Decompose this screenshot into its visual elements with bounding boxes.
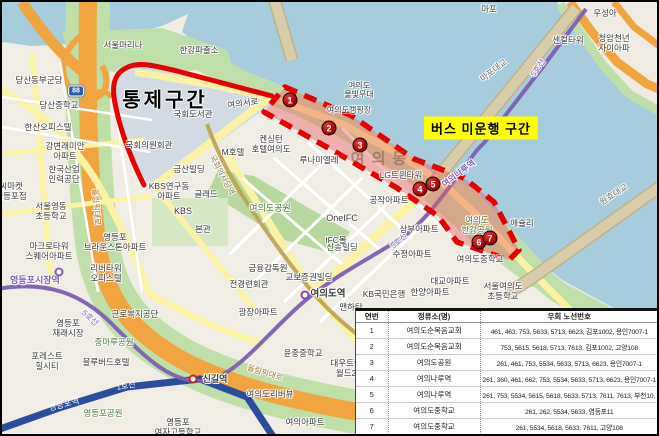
cell-stop: 여의도중학교 (388, 419, 480, 434)
table-row: 7여의도중학교261, 5534, 5618, 5633, 7611, 고양10… (356, 419, 658, 434)
stop-marker: 3 (353, 138, 368, 153)
stop-marker: 2 (322, 121, 337, 136)
table-row: 5여의나루역261, 753, 5534, 5615, 5618, 5633, … (356, 387, 658, 403)
stop-marker: 7 (483, 231, 498, 246)
stop-marker: 1 (283, 93, 298, 108)
table-row: 6여의도중학교261, 262, 5534, 5633, 영등포11 (356, 403, 658, 419)
table-row: 3여의도공원261, 461, 753, 5534, 5633, 5713, 6… (356, 355, 658, 371)
cell-no: 7 (356, 419, 388, 434)
cell-no: 4 (356, 371, 388, 387)
cell-routes: 261, 461, 753, 5534, 5633, 5713, 6623, 용… (480, 355, 658, 371)
table-header-cell: 연번 (356, 311, 388, 323)
cell-stop: 여의나루역 (388, 387, 480, 403)
cell-no: 2 (356, 339, 388, 355)
cell-stop: 여의도순복음교회 (388, 323, 480, 339)
table-header-cell: 정류소(명) (388, 311, 480, 323)
cell-routes: 261, 753, 5534, 5615, 5618, 5633, 5713, … (480, 387, 658, 403)
cell-routes: 753, 5615, 5618, 5713, 7613, 김포1002, 고양1… (480, 339, 658, 355)
cell-routes: 261, 5534, 5618, 5633, 7611, 고양108 (480, 419, 658, 434)
station-dot-icon (55, 268, 64, 277)
cell-stop: 여의도순복음교회 (388, 339, 480, 355)
cell-stop: 여의도중학교 (388, 403, 480, 419)
cell-no: 3 (356, 355, 388, 371)
cell-no: 1 (356, 323, 388, 339)
table-row: 4여의나루역261, 360, 461, 662, 753, 5534, 563… (356, 371, 658, 387)
cell-routes: 261, 262, 5534, 5633, 영등포11 (480, 403, 658, 419)
road-shield-icon: 88 (68, 86, 84, 97)
cell-stop: 여의도공원 (388, 355, 480, 371)
table-row: 1여의도순복음교회461, 463, 753, 5633, 5713, 6623… (356, 323, 658, 339)
cell-stop: 여의나루역 (388, 371, 480, 387)
table-header-row: 연번정류소(명)우회 노선번호 (356, 311, 658, 323)
stop-marker: 5 (426, 177, 441, 192)
table-row: 2여의도순복음교회753, 5615, 5618, 5713, 7613, 김포… (356, 339, 658, 355)
table-header-cell: 우회 노선번호 (480, 311, 658, 323)
map-canvas: 서울마리나한강파출소마포우성아센컬타워청암천년 자이아파마포대교원효대교5호선5… (0, 0, 659, 436)
station-dot-icon (301, 291, 310, 300)
control-zone-label: 통제구간 (122, 84, 208, 113)
cell-no: 6 (356, 403, 388, 419)
cell-no: 5 (356, 387, 388, 403)
cell-routes: 261, 360, 461, 662, 753, 5534, 5633, 571… (480, 371, 658, 387)
cell-routes: 461, 463, 753, 5633, 5713, 6623, 김포1002,… (480, 323, 658, 339)
station-dot-icon (189, 375, 198, 384)
no-service-label: 버스 미운행 구간 (424, 117, 538, 140)
detour-table: 연번정류소(명)우회 노선번호 1여의도순복음교회461, 463, 753, … (355, 308, 659, 435)
